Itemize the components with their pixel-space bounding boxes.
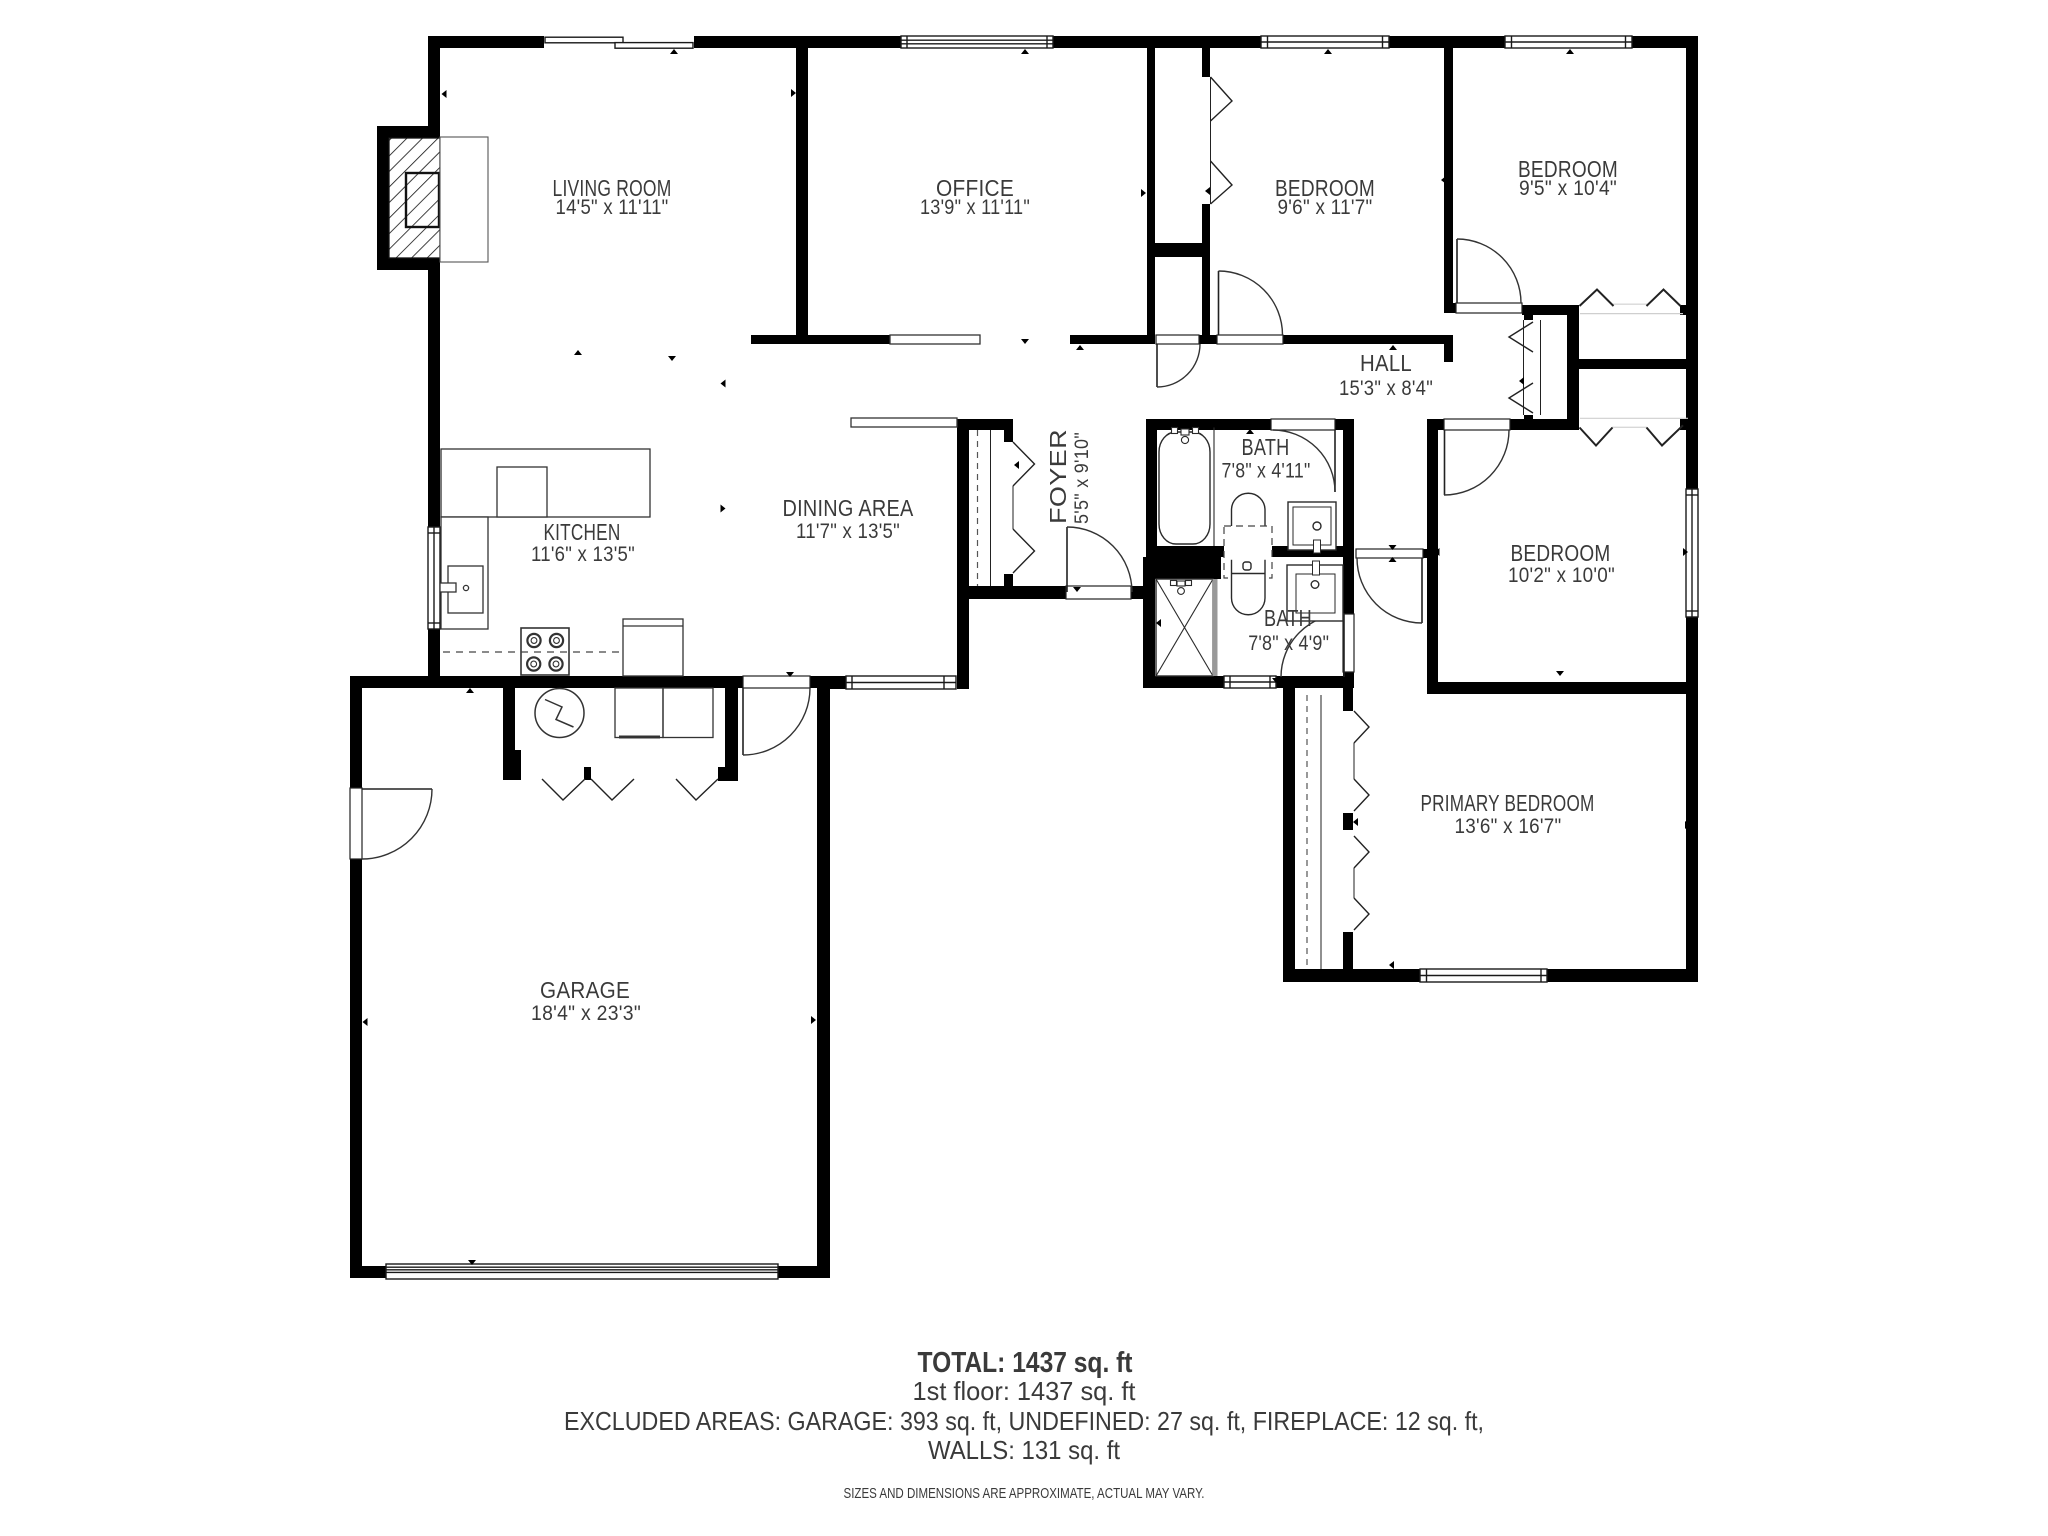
svg-text:15'3" x 8'4": 15'3" x 8'4" [1339,377,1433,400]
svg-text:WALLS: 131 sq. ft: WALLS: 131 sq. ft [928,1435,1121,1465]
svg-text:DINING AREA: DINING AREA [783,495,914,521]
svg-text:KITCHEN: KITCHEN [544,519,621,545]
svg-text:BATH: BATH [1264,605,1312,631]
svg-text:1st floor: 1437 sq. ft: 1st floor: 1437 sq. ft [913,1376,1137,1406]
svg-text:9'5" x 10'4": 9'5" x 10'4" [1519,177,1617,200]
svg-text:5'5" x 9'10": 5'5" x 9'10" [1071,432,1093,524]
svg-text:13'9" x 11'11": 13'9" x 11'11" [920,196,1030,219]
svg-text:EXCLUDED AREAS: GARAGE: 393 sq: EXCLUDED AREAS: GARAGE: 393 sq. ft, UNDE… [564,1406,1484,1436]
svg-text:SIZES AND DIMENSIONS ARE APPRO: SIZES AND DIMENSIONS ARE APPROXIMATE, AC… [844,1485,1205,1502]
svg-text:13'6" x 16'7": 13'6" x 16'7" [1455,815,1562,838]
svg-text:14'5" x 11'11": 14'5" x 11'11" [556,196,669,219]
svg-text:BEDROOM: BEDROOM [1511,540,1611,566]
svg-text:9'6" x 11'7": 9'6" x 11'7" [1278,196,1373,219]
svg-text:11'7" x 13'5": 11'7" x 13'5" [796,520,900,543]
svg-text:10'2" x 10'0": 10'2" x 10'0" [1508,564,1615,587]
svg-text:7'8" x 4'11": 7'8" x 4'11" [1222,460,1311,483]
svg-text:7'8" x 4'9": 7'8" x 4'9" [1248,632,1329,655]
svg-text:18'4" x 23'3": 18'4" x 23'3" [531,1002,641,1025]
svg-text:TOTAL: 1437 sq. ft: TOTAL: 1437 sq. ft [918,1347,1133,1379]
svg-text:FOYER: FOYER [1045,429,1071,524]
svg-text:BATH: BATH [1242,434,1290,460]
svg-text:PRIMARY BEDROOM: PRIMARY BEDROOM [1421,790,1595,816]
svg-text:HALL: HALL [1360,350,1412,376]
svg-text:GARAGE: GARAGE [540,977,630,1003]
svg-text:11'6" x 13'5": 11'6" x 13'5" [531,543,635,566]
